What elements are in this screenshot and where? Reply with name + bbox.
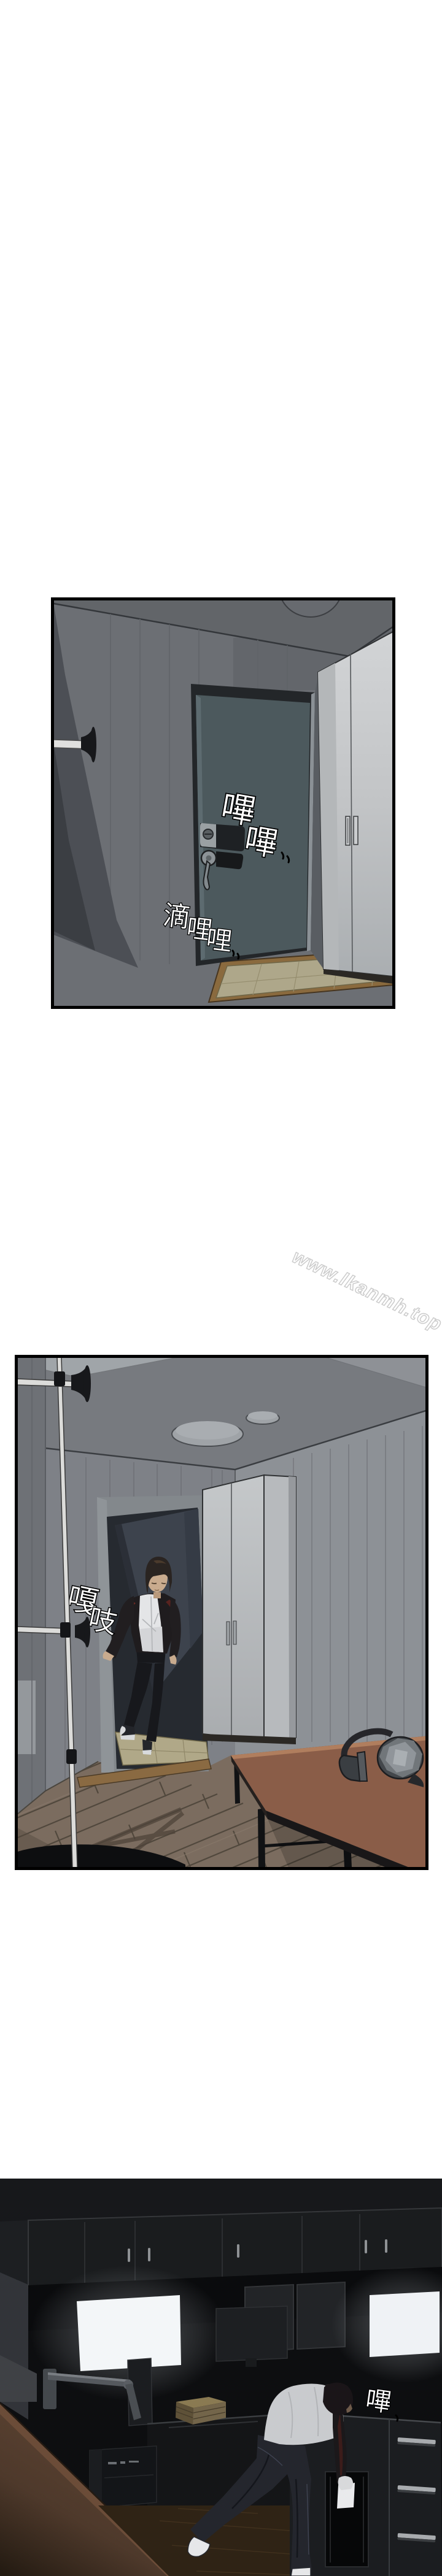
svg-text:www.lkanmh.top: www.lkanmh.top (289, 1246, 442, 1335)
